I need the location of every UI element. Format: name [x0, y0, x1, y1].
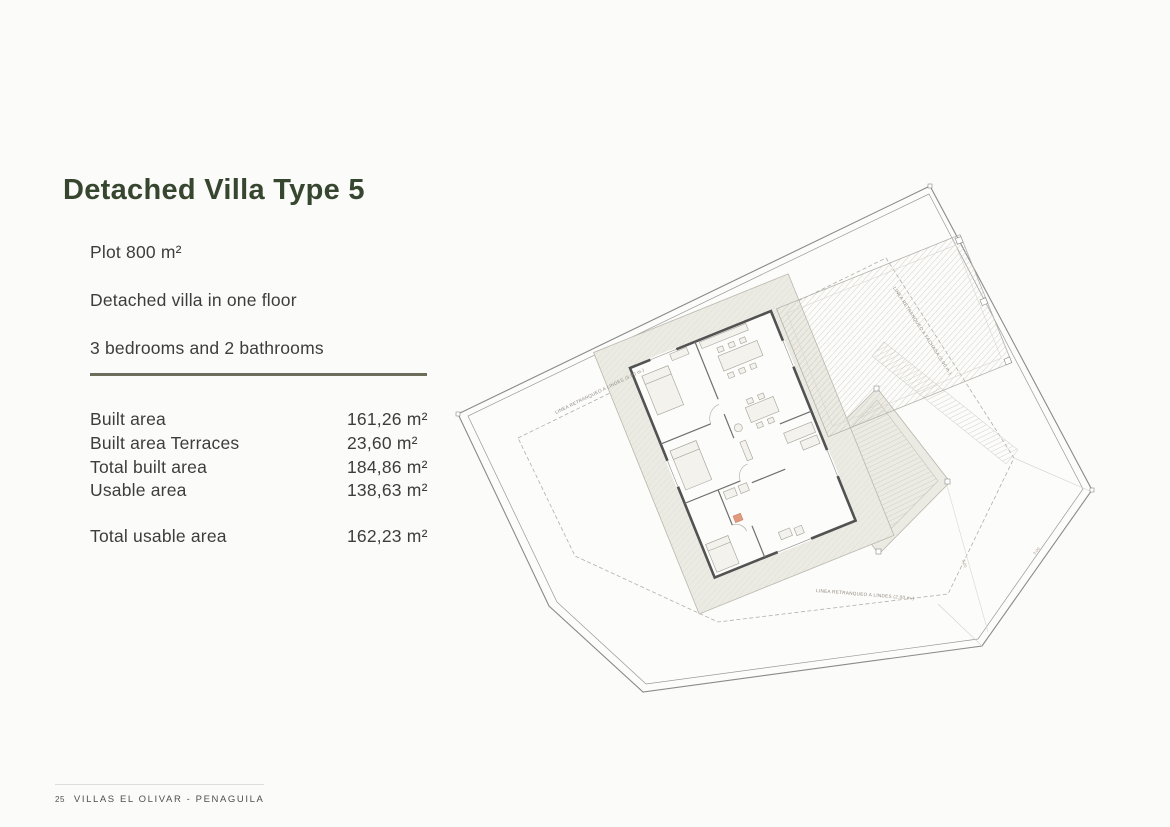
section-divider [90, 373, 427, 376]
brochure-page: Detached Villa Type 5 Plot 800 m² Detach… [0, 0, 1170, 827]
table-row: Usable area 138,63 m² [90, 480, 450, 504]
area-value: 184,86 m² [347, 457, 428, 478]
page-number: 25 [55, 795, 65, 804]
spec-floors: Detached villa in one floor [90, 290, 297, 311]
area-label: Built area Terraces [90, 433, 239, 453]
area-label: Total usable area [90, 526, 227, 546]
spec-plot-size: Plot 800 m² [90, 242, 182, 263]
table-row-total: Total usable area 162,23 m² [90, 526, 450, 550]
table-row: Built area Terraces 23,60 m² [90, 433, 450, 457]
page-footer: 25VILLAS EL OLIVAR - PENAGUILA [55, 784, 264, 807]
spec-rooms: 3 bedrooms and 2 bathrooms [90, 338, 324, 359]
area-value: 138,63 m² [347, 480, 428, 501]
area-label: Usable area [90, 480, 187, 500]
page-title: Detached Villa Type 5 [63, 174, 365, 207]
area-value: 162,23 m² [347, 526, 428, 547]
table-row: Built area 161,26 m² [90, 409, 450, 433]
footer-text: VILLAS EL OLIVAR - PENAGUILA [74, 794, 265, 805]
area-value: 23,60 m² [347, 433, 418, 454]
area-label: Built area [90, 409, 166, 429]
floor-plan-drawing: LINEA RETRANQUEO A LINDES (3.00 m.) LINE… [440, 160, 1140, 705]
area-table: Built area 161,26 m² Built area Terraces… [90, 409, 450, 504]
area-label: Total built area [90, 457, 207, 477]
area-value: 161,26 m² [347, 409, 428, 430]
table-row: Total built area 184,86 m² [90, 457, 450, 481]
